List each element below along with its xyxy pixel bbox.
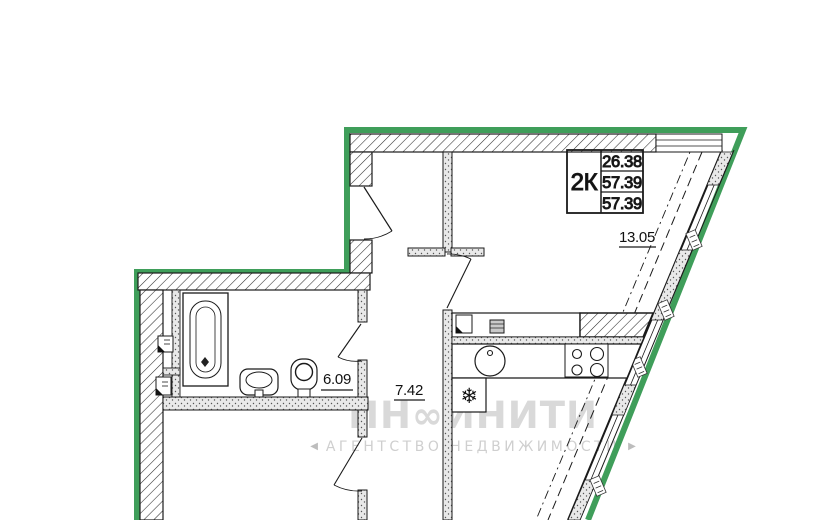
total-area-value: 57.39 <box>602 174 642 192</box>
fridge-icon: ❄ <box>460 384 477 408</box>
bathroom-area-label: 6.09 <box>323 371 351 388</box>
kitchen-living-area-label: 13.05 <box>619 229 655 246</box>
stove <box>565 344 608 377</box>
entrance-door <box>364 187 392 239</box>
bedroom-door <box>334 438 362 491</box>
vent-shaft <box>580 313 653 337</box>
living-area-value: 26.38 <box>602 153 642 171</box>
floorplan-canvas: ИН∞ИНИТИ ◀ АГЕНТСТВО НЕДВИЖИМОСТИ ▶ <box>0 0 830 520</box>
hallway-area-label: 7.42 <box>395 382 423 399</box>
washbasin <box>240 369 278 397</box>
vent-icon <box>490 320 504 333</box>
living-room-door <box>447 254 471 308</box>
fridge: ❄ <box>452 378 486 412</box>
total-area-balcony-value: 57.39 <box>602 195 642 213</box>
unit-type-label: 2К <box>571 169 598 196</box>
toilet <box>291 359 317 397</box>
floor-plan-svg: ❄ 2К 26.38 57.39 57.39 13.05 7.42 6.09 <box>0 0 830 520</box>
unit-info-box: 2К 26.38 57.39 57.39 <box>567 150 643 213</box>
kitchen-counter <box>452 313 653 378</box>
bathroom-door <box>338 324 361 361</box>
bathtub <box>183 293 228 386</box>
